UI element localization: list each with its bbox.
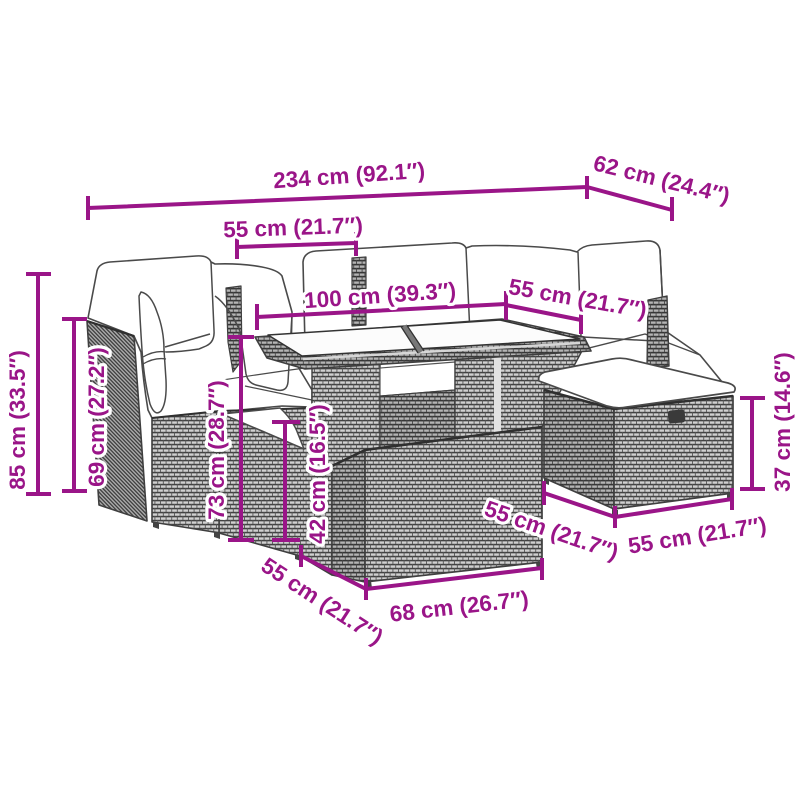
svg-text:69 cm (27.2″): 69 cm (27.2″) [84, 347, 109, 487]
svg-text:85 cm (33.5″): 85 cm (33.5″) [5, 350, 30, 490]
svg-text:42 cm (16.5″): 42 cm (16.5″) [305, 404, 330, 544]
svg-text:55 cm (21.7″): 55 cm (21.7″) [223, 213, 363, 243]
svg-text:37 cm (14.6″): 37 cm (14.6″) [770, 352, 795, 492]
svg-text:73 cm (28.7″): 73 cm (28.7″) [204, 380, 229, 520]
